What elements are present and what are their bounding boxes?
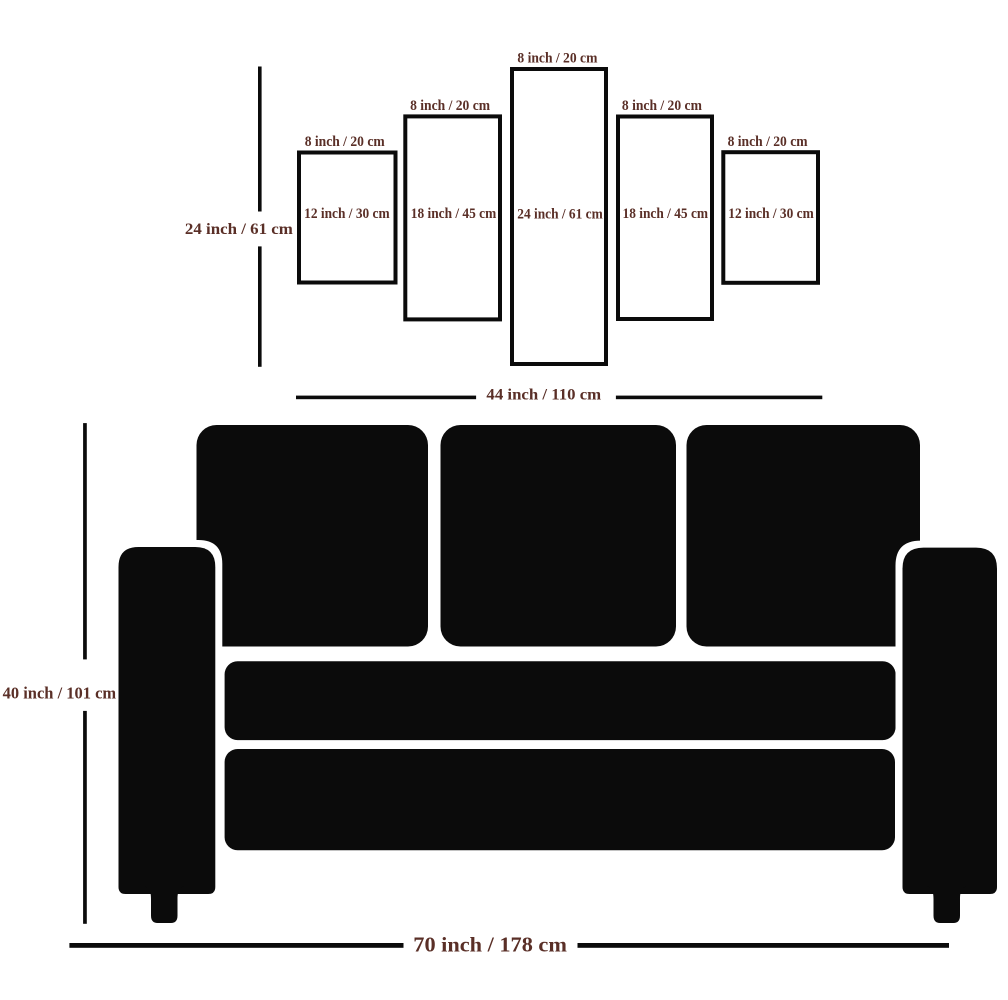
svg-text:18 inch / 45 cm: 18 inch / 45 cm bbox=[411, 206, 497, 222]
svg-text:40 inch / 101 cm: 40 inch / 101 cm bbox=[3, 683, 117, 702]
svg-text:8 inch / 20 cm: 8 inch / 20 cm bbox=[410, 98, 490, 114]
svg-text:8 inch / 20 cm: 8 inch / 20 cm bbox=[622, 98, 702, 114]
svg-text:8 inch / 20 cm: 8 inch / 20 cm bbox=[728, 134, 808, 150]
svg-text:24 inch / 61 cm: 24 inch / 61 cm bbox=[185, 221, 294, 238]
svg-text:8 inch / 20 cm: 8 inch / 20 cm bbox=[305, 134, 385, 150]
svg-text:8 inch / 20 cm: 8 inch / 20 cm bbox=[517, 51, 597, 67]
svg-text:70 inch / 178 cm: 70 inch / 178 cm bbox=[413, 932, 567, 956]
svg-text:12 inch / 30 cm: 12 inch / 30 cm bbox=[728, 206, 814, 222]
svg-text:12 inch / 30 cm: 12 inch / 30 cm bbox=[304, 206, 390, 222]
svg-text:24 inch / 61 cm: 24 inch / 61 cm bbox=[517, 207, 603, 223]
svg-text:18 inch / 45 cm: 18 inch / 45 cm bbox=[623, 206, 709, 222]
svg-text:44 inch / 110 cm: 44 inch / 110 cm bbox=[486, 387, 601, 404]
